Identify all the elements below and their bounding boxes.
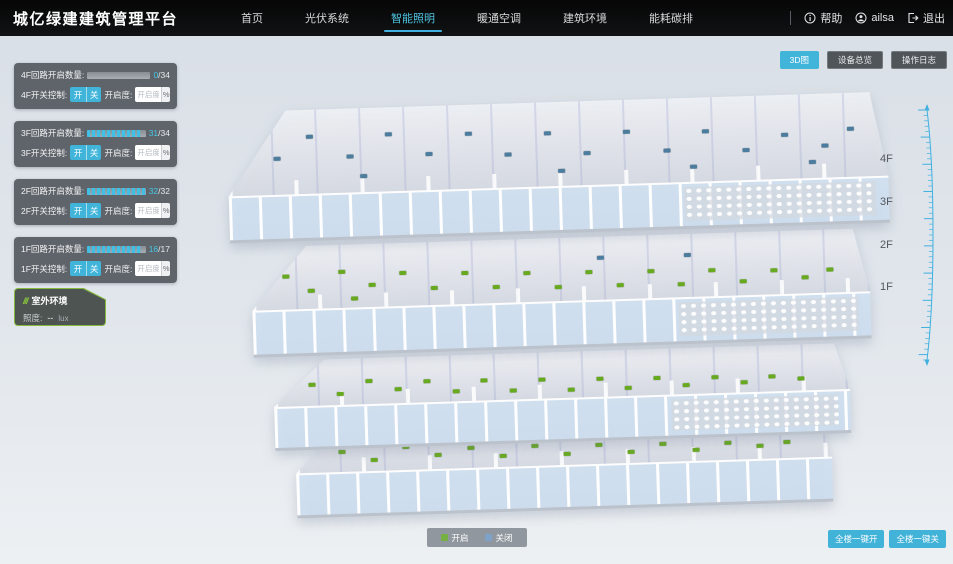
view-3d-button[interactable]: 3D图: [780, 51, 819, 69]
nav-item-home[interactable]: 首页: [220, 0, 284, 36]
light-dot-on: [625, 386, 632, 390]
bulk-control-buttons: 全楼一键开 全楼一键关: [828, 530, 946, 548]
percent-apply-button[interactable]: %: [161, 203, 170, 218]
percent-apply-button[interactable]: %: [161, 261, 170, 276]
light-dot-on: [783, 440, 790, 444]
circuit-progress-bar: [87, 130, 145, 137]
dim-level-label: 开启度:: [104, 147, 132, 159]
user-menu[interactable]: ailsa: [855, 12, 894, 24]
dim-level-label: 开启度:: [104, 263, 132, 275]
light-dot-off: [464, 132, 471, 136]
light-dot-on: [371, 457, 378, 461]
floor-label-3f: 3F: [880, 196, 893, 208]
nav-item-building-env[interactable]: 建筑环境: [542, 0, 628, 36]
light-dot-on: [555, 285, 562, 289]
dim-input-group: %: [135, 87, 170, 102]
dim-level-label: 开启度:: [104, 205, 132, 217]
light-dot-on: [692, 447, 699, 451]
dim-input-group: %: [135, 261, 170, 276]
light-dot-off: [623, 130, 630, 134]
nav-item-energy-carbon[interactable]: 能耗碳排: [628, 0, 714, 36]
light-dot-off: [821, 144, 828, 148]
dim-level-input[interactable]: [135, 145, 161, 160]
switch-off-button[interactable]: 关: [86, 261, 102, 276]
light-dot-on: [431, 286, 438, 290]
light-dot-on: [567, 387, 574, 391]
all-off-button[interactable]: 全楼一键关: [889, 530, 946, 548]
light-dot-on: [724, 441, 731, 445]
light-dot-on: [826, 267, 833, 271]
floor-label-4f: 4F: [880, 153, 893, 165]
light-dot-on: [337, 392, 344, 396]
light-dot-on: [351, 296, 358, 300]
light-dot-off: [558, 169, 565, 173]
light-dot-on: [595, 443, 602, 447]
light-dot-off: [584, 151, 591, 155]
circuit-count-label: 4F回路开启数量:: [21, 69, 84, 81]
dim-input-group: %: [135, 203, 170, 218]
light-dot-on: [756, 443, 763, 447]
illuminance-unit: lux: [58, 314, 68, 323]
dim-level-input[interactable]: [135, 87, 161, 102]
light-dot-off: [683, 253, 690, 257]
nav-item-pv-system[interactable]: 光伏系统: [284, 0, 370, 36]
switch-button-group: 开 关: [70, 87, 101, 102]
legend-off-swatch: [485, 534, 492, 541]
light-dot-on: [770, 268, 777, 272]
light-dot-on: [395, 387, 402, 391]
light-dot-on: [740, 279, 747, 283]
perforated-panel: [672, 394, 840, 430]
top-nav-bar: 城亿绿建建筑管理平台 首页 光伏系统 智能照明 暖通空调 建筑环境 能耗碳排 帮…: [0, 0, 953, 36]
legend-item-on: 开启: [440, 532, 468, 544]
light-dot-on: [709, 268, 716, 272]
light-dot-on: [678, 282, 685, 286]
light-dot-off: [663, 149, 670, 153]
light-dot-off: [425, 152, 432, 156]
outdoor-env-icon: ///: [23, 296, 28, 306]
help-label: 帮助: [820, 10, 842, 26]
view-mode-buttons: 3D图 设备总览 操作日志: [780, 51, 947, 69]
floor-slab-4f: [226, 92, 890, 244]
switch-off-button[interactable]: 关: [86, 203, 102, 218]
light-dot-on: [338, 449, 345, 453]
user-icon: [855, 12, 867, 24]
switch-on-button[interactable]: 开: [70, 261, 86, 276]
light-dot-on: [365, 379, 372, 383]
percent-apply-button[interactable]: %: [161, 145, 170, 160]
legend-on-label: 开启: [451, 532, 468, 544]
light-dot-on: [308, 383, 315, 387]
light-dot-on: [499, 453, 506, 457]
info-icon: [804, 12, 816, 24]
circuit-progress-bar: [87, 72, 150, 79]
circuit-count-value: 0/34: [153, 70, 170, 80]
light-dot-on: [647, 269, 654, 273]
switch-control-label: 2F开关控制:: [21, 205, 67, 217]
light-dot-on: [564, 452, 571, 456]
switch-control-label: 1F开关控制:: [21, 263, 67, 275]
switch-button-group: 开 关: [70, 261, 101, 276]
light-dot-off: [690, 165, 697, 169]
light-dot-on: [596, 376, 603, 380]
light-dot-off: [597, 256, 604, 260]
device-overview-button[interactable]: 设备总览: [827, 51, 883, 69]
illuminance-value: --: [47, 313, 53, 323]
operation-log-button[interactable]: 操作日志: [891, 51, 947, 69]
floor-panel-4f: 4F回路开启数量: 0/34 4F开关控制: 开 关 开启度: %: [14, 63, 177, 109]
light-dot-on: [654, 376, 661, 380]
platform-title: 城亿绿建建筑管理平台: [13, 8, 178, 29]
light-dot-off: [385, 132, 392, 136]
light-dot-off: [544, 131, 551, 135]
light-dot-on: [338, 270, 345, 274]
perforated-panel: [679, 297, 859, 336]
circuit-count-label: 1F回路开启数量:: [21, 243, 84, 255]
light-dot-on: [711, 375, 718, 379]
circuit-progress-bar: [87, 246, 145, 253]
light-dot-off: [847, 126, 854, 130]
nav-right-group: 帮助 ailsa 退出: [790, 0, 945, 36]
floor-scale-ruler[interactable]: [910, 104, 944, 366]
light-dot-off: [702, 129, 709, 133]
logout-label: 退出: [923, 10, 945, 26]
illuminance-label: 照度:: [23, 312, 42, 324]
switch-on-button[interactable]: 开: [70, 145, 86, 160]
floor-panel-2f: 2F回路开启数量: 32/32 2F开关控制: 开 关 开启度: %: [14, 179, 177, 225]
light-dot-off: [781, 133, 788, 137]
light-dot-on: [538, 377, 545, 381]
circuit-count-value: 31/34: [149, 128, 170, 138]
floor-label-1f: 1F: [880, 281, 893, 293]
logout-button[interactable]: 退出: [907, 10, 945, 26]
light-dot-off: [742, 148, 749, 152]
outdoor-env-panel: /// 室外环境 照度: -- lux: [14, 288, 106, 326]
light-dot-on: [282, 275, 289, 279]
nav-divider: [790, 11, 791, 25]
nav-item-smart-lighting[interactable]: 智能照明: [370, 0, 456, 36]
light-dot-on: [769, 374, 776, 378]
light-dot-off: [809, 159, 816, 163]
light-dot-on: [683, 383, 690, 387]
smart-lighting-page: 城亿绿建建筑管理平台 首页 光伏系统 智能照明 暖通空调 建筑环境 能耗碳排 帮…: [0, 0, 953, 564]
dim-input-group: %: [135, 145, 170, 160]
circuit-count-value: 16/17: [149, 244, 170, 254]
light-dot-on: [400, 271, 407, 275]
switch-on-button[interactable]: 开: [70, 203, 86, 218]
circuit-count-label: 2F回路开启数量:: [21, 185, 84, 197]
light-dot-off: [306, 135, 313, 139]
light-dot-on: [369, 283, 376, 287]
light-dot-on: [481, 378, 488, 382]
light-dot-on: [467, 445, 474, 449]
help-button[interactable]: 帮助: [804, 10, 842, 26]
switch-control-label: 3F开关控制:: [21, 147, 67, 159]
light-dot-off: [505, 152, 512, 156]
floor-label-2f: 2F: [880, 239, 893, 251]
circuit-count-value: 32/32: [149, 186, 170, 196]
light-dot-on: [740, 380, 747, 384]
logout-icon: [907, 12, 919, 24]
light-dot-off: [346, 155, 353, 159]
light-dot-off: [360, 174, 367, 178]
dim-level-label: 开启度:: [104, 89, 132, 101]
floor-slab-2f: [273, 343, 852, 451]
light-dot-off: [274, 157, 281, 161]
dim-level-input[interactable]: [135, 203, 161, 218]
nav-item-hvac[interactable]: 暖通空调: [456, 0, 542, 36]
floor-slab-3f: [250, 228, 871, 357]
outdoor-env-title: 室外环境: [32, 294, 68, 307]
switch-button-group: 开 关: [70, 145, 101, 160]
switch-off-button[interactable]: 关: [86, 145, 102, 160]
legend-item-off: 关闭: [485, 532, 513, 544]
light-dot-on: [435, 453, 442, 457]
all-on-button[interactable]: 全楼一键开: [828, 530, 885, 548]
username-label: ailsa: [871, 12, 894, 24]
circuit-count-label: 3F回路开启数量:: [21, 127, 84, 139]
legend-off-label: 关闭: [496, 532, 513, 544]
light-dot-on: [798, 377, 805, 381]
switch-on-button[interactable]: 开: [70, 87, 86, 102]
light-dot-on: [423, 379, 430, 383]
light-dot-on: [616, 283, 623, 287]
floor-panel-3f: 3F回路开启数量: 31/34 3F开关控制: 开 关 开启度: %: [14, 121, 177, 167]
switch-off-button[interactable]: 关: [86, 87, 102, 102]
light-dot-on: [461, 271, 468, 275]
light-dot-on: [307, 289, 314, 293]
floor-panel-1f: 1F回路开启数量: 16/17 1F开关控制: 开 关 开启度: %: [14, 237, 177, 283]
light-dot-on: [531, 444, 538, 448]
percent-apply-button[interactable]: %: [161, 87, 170, 102]
light-dot-on: [452, 389, 459, 393]
light-dot-on: [493, 285, 500, 289]
dim-level-input[interactable]: [135, 261, 161, 276]
switch-control-label: 4F开关控制:: [21, 89, 67, 101]
perforated-panel: [684, 181, 876, 221]
light-dot-on: [523, 270, 530, 274]
light-state-legend: 开启 关闭: [426, 528, 526, 547]
switch-button-group: 开 关: [70, 203, 101, 218]
light-dot-on: [510, 388, 517, 392]
light-dot-on: [628, 450, 635, 454]
light-dot-on: [660, 442, 667, 446]
light-dot-on: [585, 270, 592, 274]
main-menu: 首页 光伏系统 智能照明 暖通空调 建筑环境 能耗碳排: [220, 0, 714, 36]
circuit-progress-bar: [87, 188, 145, 195]
legend-on-swatch: [440, 534, 447, 541]
light-dot-on: [802, 276, 809, 280]
